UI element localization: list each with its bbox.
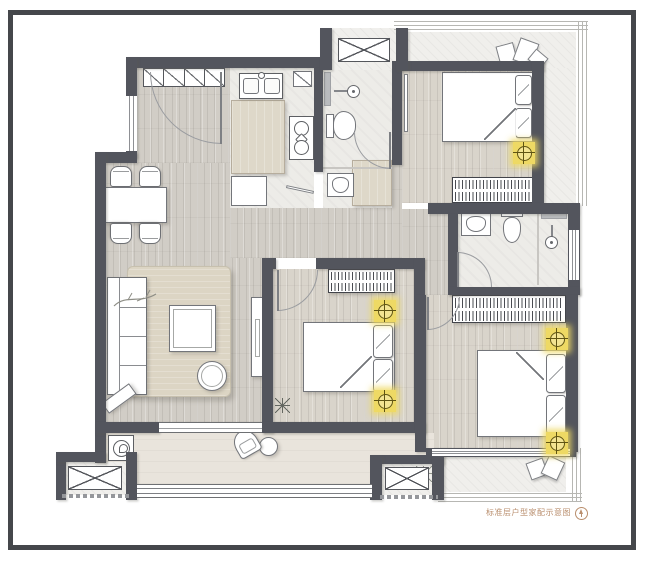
sliding-door-sill	[159, 422, 262, 433]
balcony-railing-line	[438, 497, 582, 498]
kitchen-counter	[231, 100, 285, 174]
dining-table	[104, 187, 167, 223]
blanket-fold	[340, 356, 372, 388]
terrace-railing-line	[586, 21, 587, 206]
kitchen-base-cabinet	[231, 176, 267, 206]
coffee-table	[169, 305, 216, 352]
wardrobe-bedroom-2	[328, 269, 395, 293]
ac-unit-icon	[68, 466, 122, 490]
wall-bedroom-1-right	[532, 61, 544, 209]
wall-top-bedroom-1	[396, 61, 544, 71]
wardrobe-bedroom-1	[452, 177, 536, 203]
ac-platform-sill	[62, 494, 130, 498]
bedroom-1-door-leaf	[404, 74, 408, 132]
terrace-railing-line	[394, 29, 588, 30]
ceiling-light-icon	[513, 142, 535, 164]
wall-top-entry	[126, 57, 328, 68]
plant-icon	[275, 398, 290, 413]
bedroom-2-door-arc	[277, 270, 318, 311]
wall-ac-top-left	[320, 28, 332, 70]
dining-chair	[110, 223, 132, 244]
kitchen-sink	[239, 73, 283, 99]
entry-door-arc	[150, 72, 222, 144]
terrace-railing-line	[578, 21, 579, 206]
wall-bath1-bedroom1-divider	[392, 61, 402, 165]
wall-ac-left-c	[126, 452, 137, 500]
ceiling-light-icon	[374, 300, 396, 322]
shower-arm	[334, 90, 348, 92]
ac-platform-sill	[380, 495, 438, 499]
terrace-railing-line	[582, 21, 583, 206]
dining-chair	[139, 223, 161, 244]
pillow	[373, 325, 393, 358]
balcony-railing-line	[438, 501, 582, 502]
bathroom-1-door-arc	[354, 132, 391, 169]
wall-living-bottom	[95, 422, 159, 433]
wall-bathroom-2-top	[428, 203, 578, 214]
bathroom-1-shel f	[324, 72, 331, 106]
ceiling-light-icon	[546, 432, 568, 454]
pillow	[546, 395, 566, 434]
dining-chair	[110, 166, 132, 187]
pillow	[515, 108, 532, 138]
wall-ac-middle-right	[432, 455, 444, 500]
ac-unit-icon	[385, 467, 429, 490]
wall-bedroom-3-right	[566, 295, 578, 452]
ac-unit-icon	[338, 38, 390, 62]
wall-bedroom-2-bottom	[262, 422, 425, 433]
ceiling-light-icon	[546, 328, 568, 350]
shower-head-icon	[545, 236, 558, 249]
caption: 标准层户型家配示意图	[448, 505, 588, 521]
bedroom-3-door-arc	[427, 297, 460, 330]
floor-terrace-right	[544, 68, 576, 204]
pillow	[515, 75, 532, 105]
pillow	[546, 354, 566, 393]
ottoman	[197, 361, 227, 391]
caption-text: 标准层户型家配示意图	[486, 507, 571, 519]
window-left-wall	[126, 96, 137, 151]
wall-kitchen-bath-divider	[314, 68, 323, 172]
ceiling-light-icon	[374, 390, 396, 412]
floor-plan-page: 标准层户型家配示意图	[0, 0, 649, 564]
blanket-fold	[484, 108, 516, 140]
shower-head-icon	[347, 85, 360, 98]
terrace-railing-line	[394, 21, 588, 22]
gas-stove	[289, 116, 314, 160]
wall-bedroom-2-top-b	[316, 258, 424, 269]
decor-branch	[112, 288, 158, 312]
blanket-fold	[516, 352, 544, 380]
pillow	[373, 359, 393, 392]
window-bathroom-2	[569, 230, 579, 280]
balcony-railing-line	[580, 448, 581, 502]
north-arrow-icon	[575, 507, 588, 520]
wardrobe-bedroom-3	[452, 295, 566, 323]
wall-bedroom-3-left	[415, 295, 426, 452]
shower-partition	[537, 212, 539, 285]
toilet-bowl	[333, 111, 356, 140]
wall-ac-left-b	[56, 452, 106, 462]
floor-hallway	[230, 208, 402, 258]
bathroom-2-door-arc	[457, 252, 492, 287]
dining-chair	[139, 166, 161, 187]
floor-doorway	[392, 165, 402, 258]
wall-left-main	[95, 152, 106, 463]
kitchen-corner-shelf	[293, 71, 312, 87]
balcony-window-band	[137, 484, 372, 498]
wall-bathroom-2-bottom	[448, 287, 580, 295]
terrace-railing-line	[394, 25, 588, 26]
balcony-railing-line	[576, 448, 577, 502]
wall-ac-top-right	[396, 28, 408, 70]
wall-bedroom-2-left	[262, 258, 273, 433]
balcony-railing-line	[438, 493, 582, 494]
